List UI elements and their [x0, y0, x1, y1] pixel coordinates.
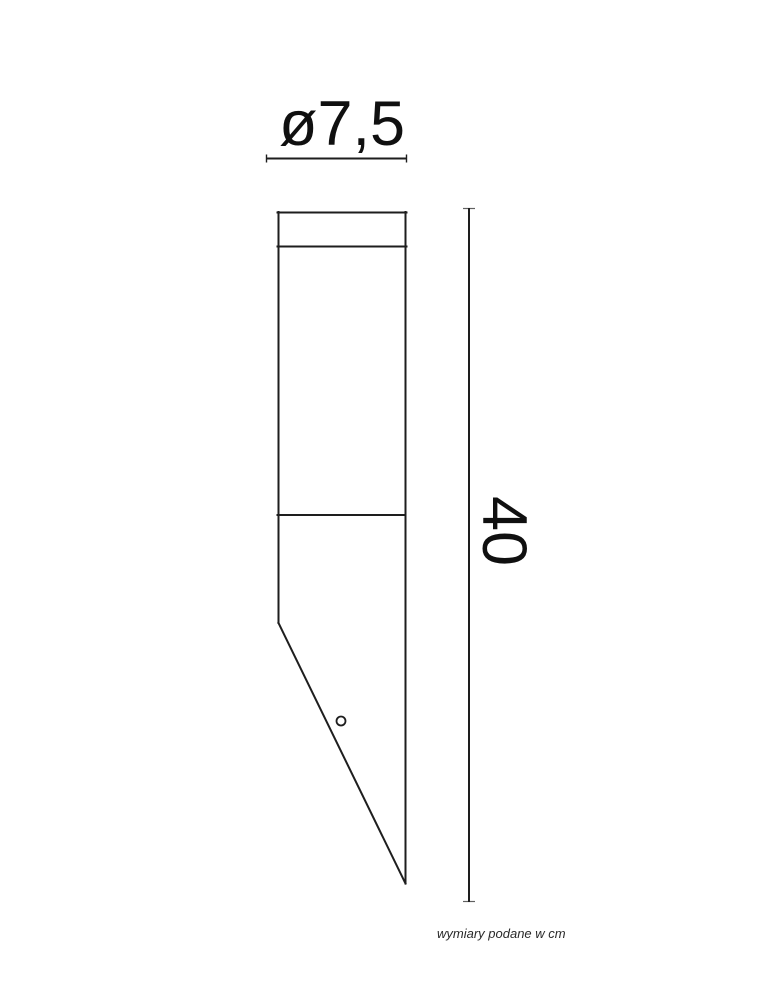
fixture-outline [278, 212, 407, 884]
dimension-lines [266, 155, 475, 903]
height-label: 40 [469, 496, 539, 566]
mounting-hole [337, 717, 346, 726]
fixture-bevel-edge [279, 623, 406, 884]
technical-drawing-page: ø7,5 40 wymiary podane w cm [0, 0, 774, 1000]
diameter-label: ø7,5 [279, 89, 405, 159]
units-footnote: wymiary podane w cm [437, 926, 566, 941]
fixture-dimension-drawing: ø7,5 40 wymiary podane w cm [0, 0, 774, 1000]
dimension-labels: ø7,5 40 [279, 89, 539, 566]
